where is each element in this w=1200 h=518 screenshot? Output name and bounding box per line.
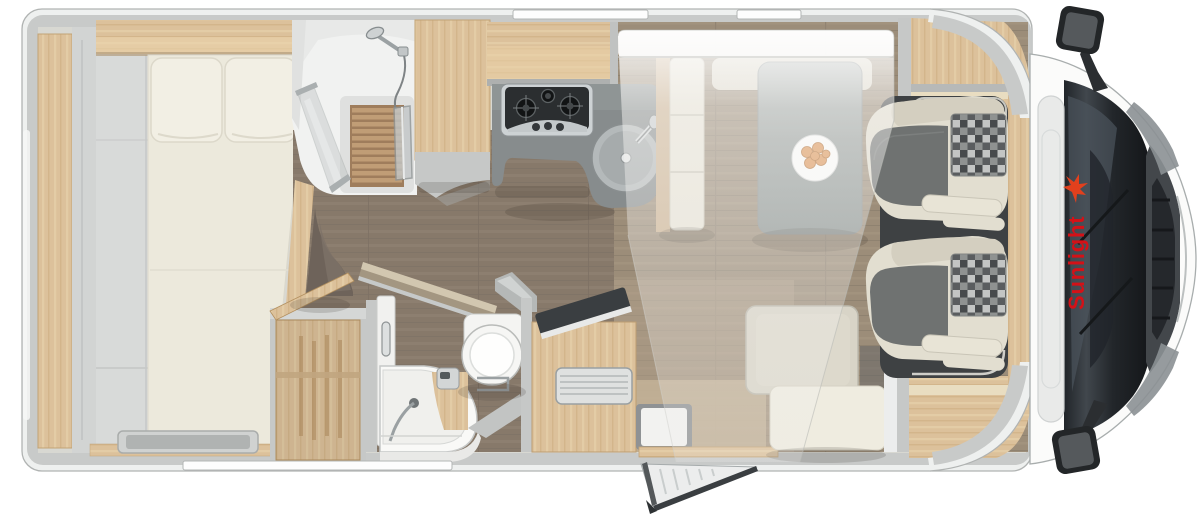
svg-text:Sunlight: Sunlight [1064, 216, 1089, 310]
